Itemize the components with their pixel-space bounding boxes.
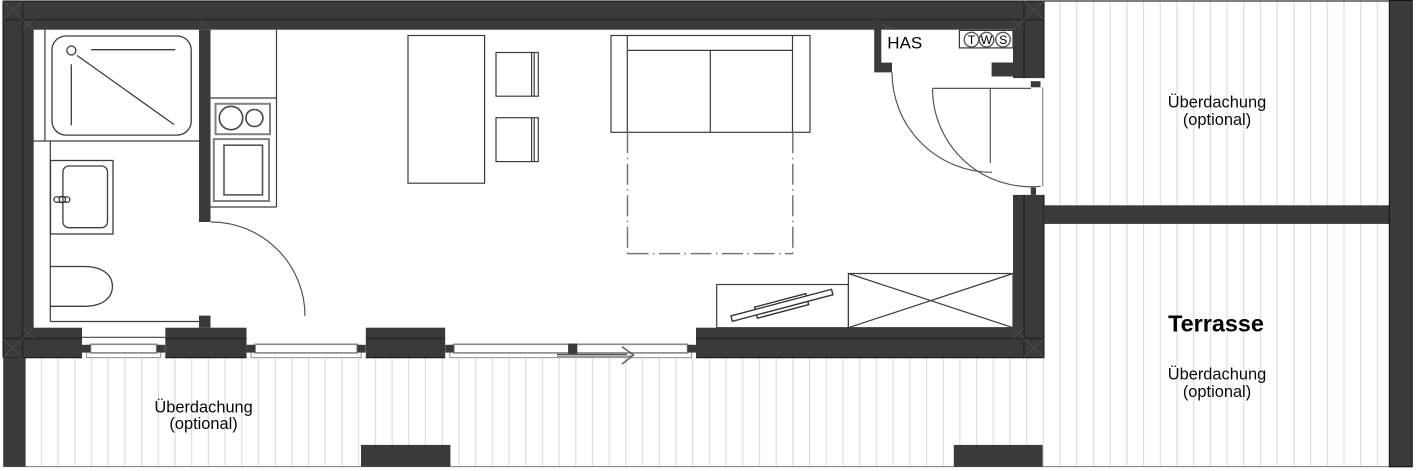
svg-text:Überdachung: Überdachung <box>1168 93 1266 111</box>
svg-text:(optional): (optional) <box>1183 383 1251 401</box>
svg-text:Terrasse: Terrasse <box>1168 311 1264 337</box>
svg-text:(optional): (optional) <box>169 415 237 433</box>
svg-text:S: S <box>999 33 1007 47</box>
svg-text:T: T <box>968 33 976 47</box>
svg-text:(optional): (optional) <box>1183 111 1251 129</box>
svg-text:HAS: HAS <box>887 34 922 53</box>
svg-text:Überdachung: Überdachung <box>154 398 252 416</box>
svg-text:Überdachung: Überdachung <box>1168 365 1266 383</box>
svg-text:W: W <box>981 33 993 47</box>
